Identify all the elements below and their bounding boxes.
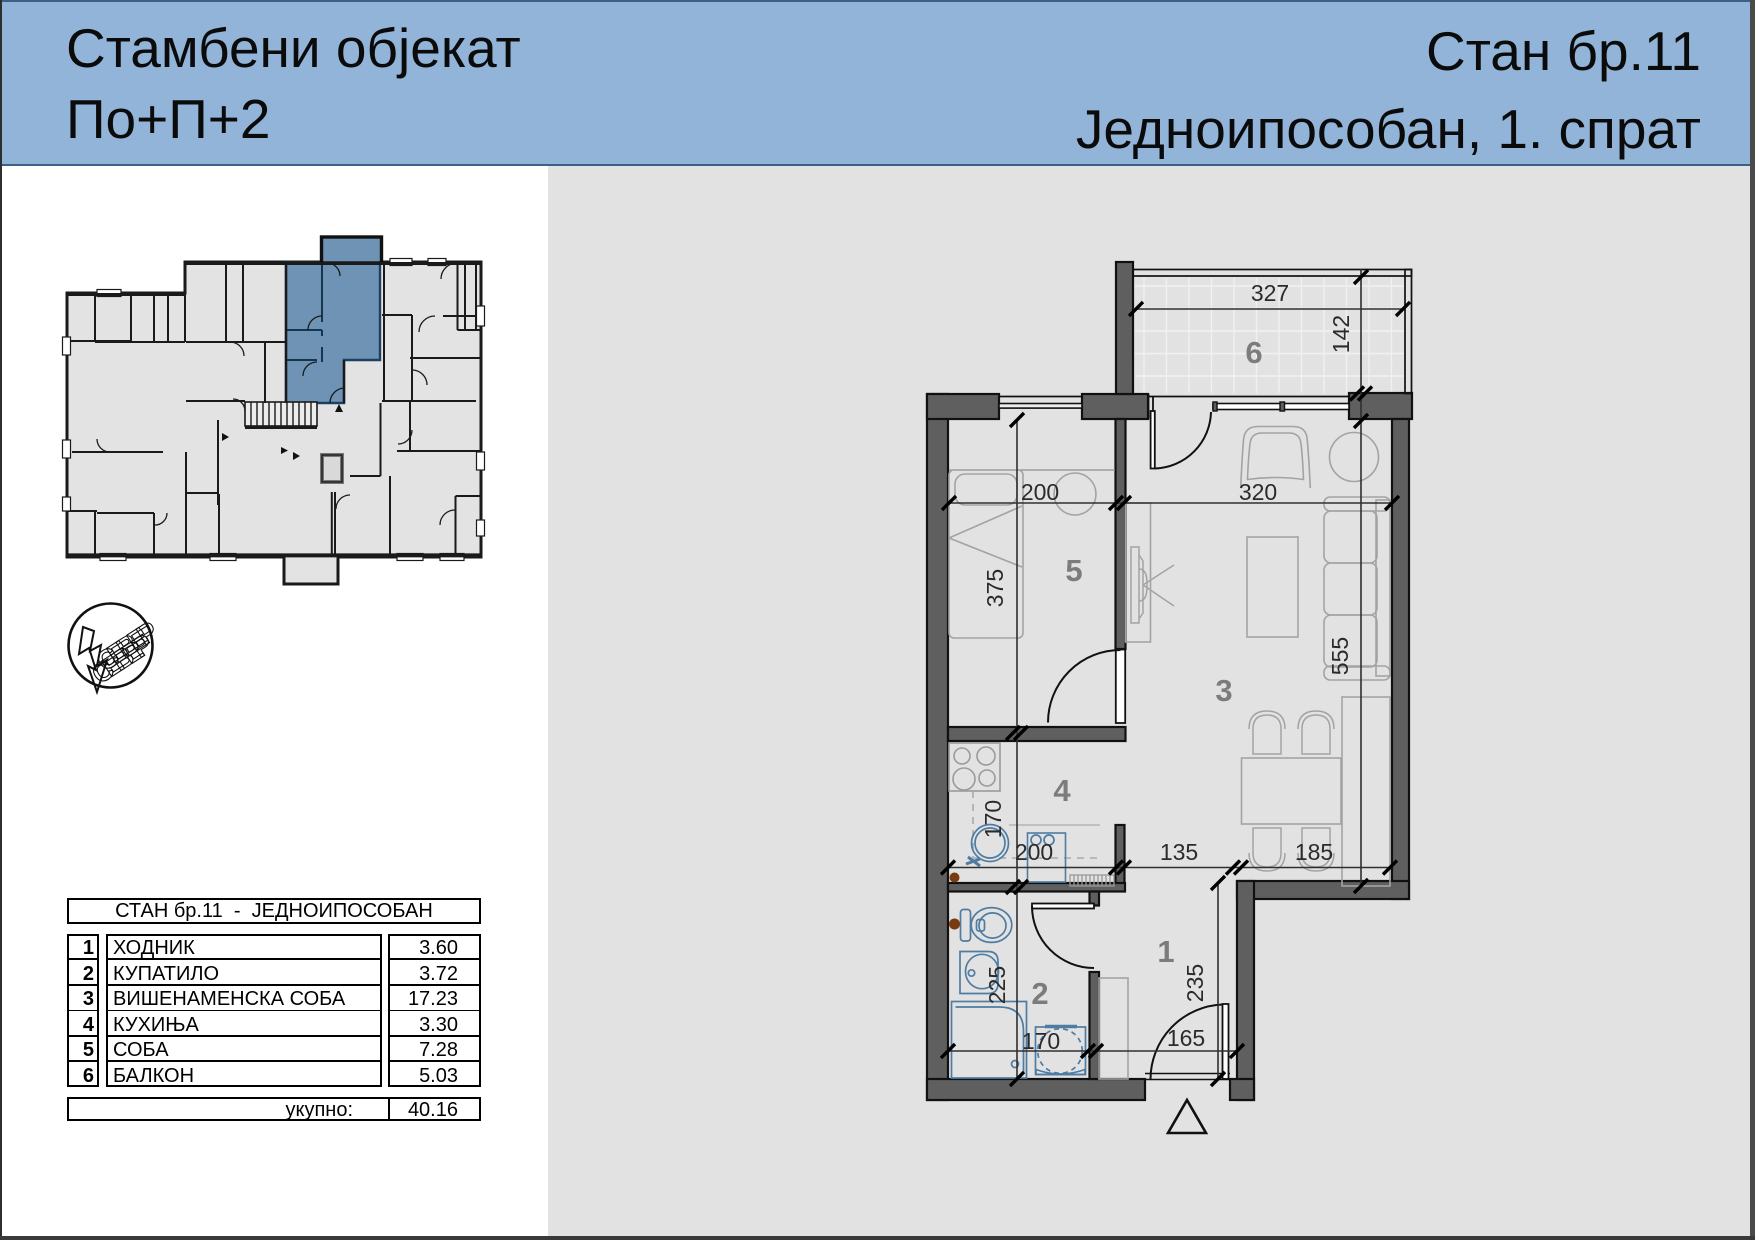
svg-text:320: 320	[1239, 479, 1277, 505]
svg-text:4: 4	[1053, 773, 1071, 808]
svg-text:185: 185	[1295, 839, 1333, 865]
svg-text:170: 170	[1022, 1028, 1060, 1054]
svg-text:3: 3	[1215, 673, 1232, 708]
svg-text:225: 225	[984, 966, 1010, 1004]
svg-text:555: 555	[1327, 637, 1353, 675]
svg-text:200: 200	[1021, 479, 1059, 505]
svg-text:170: 170	[980, 800, 1006, 838]
svg-text:135: 135	[1160, 839, 1198, 865]
svg-text:6: 6	[1245, 335, 1262, 370]
svg-text:165: 165	[1167, 1025, 1205, 1051]
svg-text:375: 375	[982, 569, 1008, 607]
svg-text:1: 1	[1157, 934, 1174, 969]
svg-text:142: 142	[1328, 315, 1354, 353]
svg-text:2: 2	[1031, 976, 1048, 1011]
svg-text:200: 200	[1015, 839, 1053, 865]
svg-text:5: 5	[1065, 553, 1082, 588]
svg-text:327: 327	[1251, 280, 1289, 306]
svg-text:235: 235	[1182, 964, 1208, 1002]
